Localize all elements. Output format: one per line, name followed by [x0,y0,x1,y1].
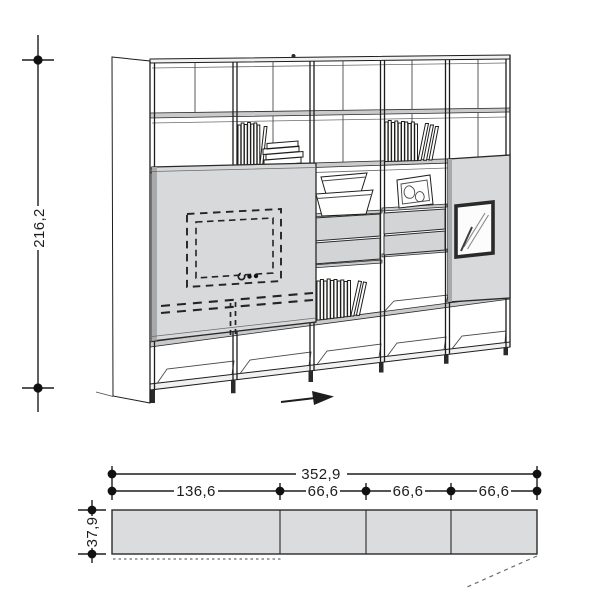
drawers-element-2 [314,214,380,264]
segment-point-2 [362,487,371,496]
depth-endpoint-bottom [88,550,97,559]
total-width-label: 352,9 [301,466,341,483]
segment-point-0 [108,487,117,496]
height-dimension-label: 216,2 [31,208,48,248]
control-dot-1 [247,274,251,278]
side-panel-left [112,57,150,403]
total-width-endpoint-left [108,470,117,479]
glass-panel [448,155,510,302]
books-upper-right [385,121,439,162]
basket [316,173,373,216]
segment-label-2: 66,6 [393,483,424,500]
control-dot-2 [254,274,258,278]
depth-endpoint-top [88,506,97,515]
tv-panel-face [152,163,316,341]
segment-point-4 [533,487,542,496]
tv-panel-left-edge [152,167,157,341]
height-dimension-endpoint-top [33,55,42,64]
drawers-element-3 [384,209,445,255]
books-stacked [263,141,303,166]
depth-dimension-label: 37,9 [84,517,101,548]
segment-point-1 [276,487,285,496]
segment-label-1: 66,6 [308,483,339,500]
tv-panel [152,163,316,341]
segment-label-3: 66,6 [479,483,510,500]
total-width-endpoint-right [533,470,542,479]
height-dimension-endpoint-bottom [33,383,42,392]
picture-frame [397,175,433,208]
glass-panel-left-edge [448,159,452,302]
diagram-canvas: 216,2 [0,0,600,600]
furniture-dimension-diagram: 216,2 [0,0,600,600]
segment-label-0: 136,6 [176,483,216,500]
top-knob [292,54,296,58]
segment-point-3 [447,487,456,496]
plan-outline [112,510,537,554]
basket-bottom [316,190,373,216]
